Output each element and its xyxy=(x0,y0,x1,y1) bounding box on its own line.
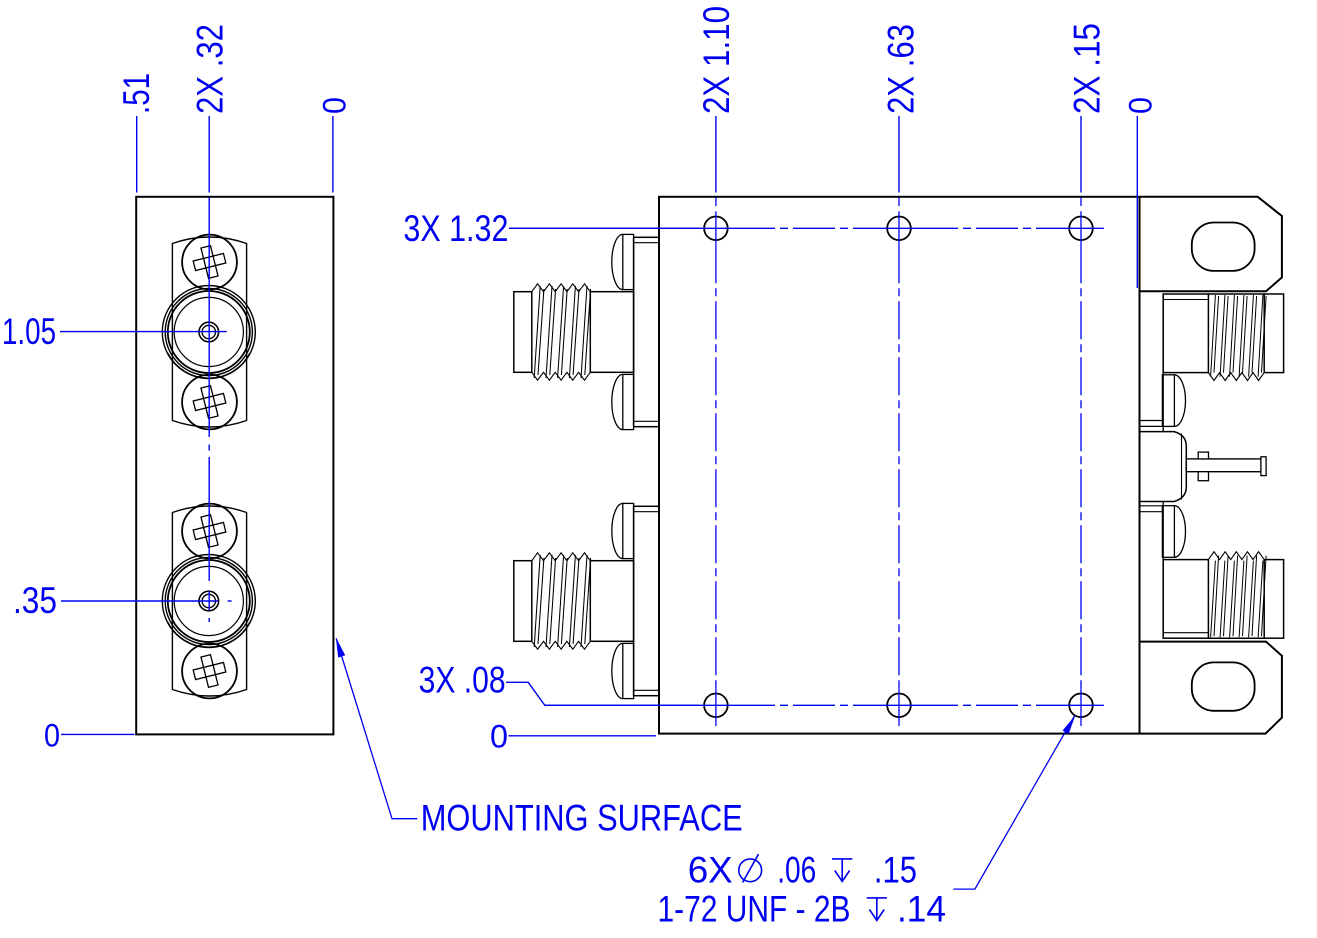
svg-text:.35: .35 xyxy=(13,580,57,621)
svg-text:0: 0 xyxy=(44,718,60,754)
svg-text:2X .15: 2X .15 xyxy=(1066,23,1107,114)
svg-text:2X .63: 2X .63 xyxy=(881,24,922,114)
svg-text:2X .32: 2X .32 xyxy=(190,24,231,114)
svg-text:.14: .14 xyxy=(897,889,946,930)
svg-text:3X .08: 3X .08 xyxy=(419,660,506,701)
svg-text:3X 1.32: 3X 1.32 xyxy=(403,208,508,249)
svg-text:0: 0 xyxy=(490,719,508,755)
svg-text:6X: 6X xyxy=(688,850,733,891)
svg-text:.06: .06 xyxy=(777,850,816,891)
svg-text:2X 1.10: 2X 1.10 xyxy=(696,6,737,114)
svg-text:1-72 UNF - 2B: 1-72 UNF - 2B xyxy=(658,889,851,930)
svg-text:MOUNTING SURFACE: MOUNTING SURFACE xyxy=(421,798,743,839)
svg-text:.51: .51 xyxy=(116,73,157,114)
svg-text:.15: .15 xyxy=(874,850,917,891)
svg-text:0: 0 xyxy=(1123,97,1159,114)
svg-text:1.05: 1.05 xyxy=(2,311,56,352)
svg-text:0: 0 xyxy=(317,97,353,114)
